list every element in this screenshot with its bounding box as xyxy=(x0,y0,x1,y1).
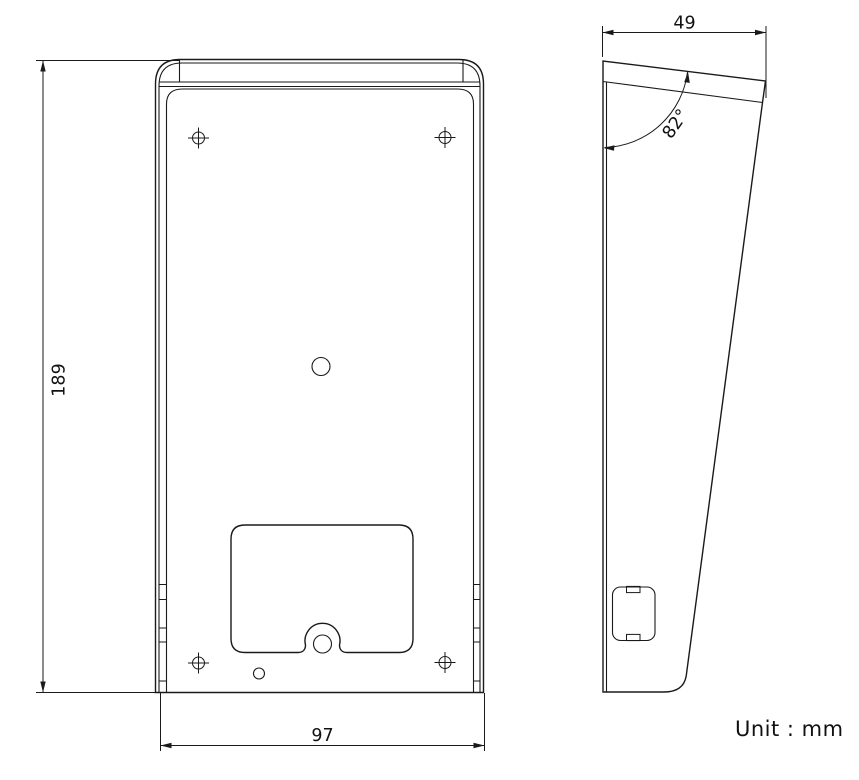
mounting-hole-top-right xyxy=(435,127,456,148)
dimension-depth: 49 xyxy=(603,14,767,99)
hook-slot-tab-bottom xyxy=(627,634,641,640)
hook-slot-outline xyxy=(613,587,656,641)
width-arrow-right xyxy=(474,743,485,748)
notch-ticks xyxy=(159,600,167,629)
back-hook-slot xyxy=(613,586,656,640)
mounting-hole-top-left xyxy=(188,128,209,149)
height-arrow-bottom xyxy=(40,682,45,693)
front-inner-panel-outline xyxy=(167,89,474,693)
notch-outline xyxy=(159,585,167,643)
dimension-height: 189 xyxy=(36,61,180,693)
dimension-drawing-canvas: 189 97 49 82° Unit : mm xyxy=(0,0,859,780)
mounting-hole-crosshair xyxy=(435,127,456,148)
depth-dimension-label: 49 xyxy=(673,14,695,34)
front-offset-outline xyxy=(159,63,480,693)
width-arrow-left xyxy=(161,743,172,748)
mounting-hole-crosshair xyxy=(435,652,456,673)
mounting-hole-crosshair xyxy=(188,653,209,674)
mounting-hole-bottom-left xyxy=(188,653,209,674)
angle-arrow-bottom xyxy=(604,145,615,151)
cable-entry-cutout xyxy=(231,525,413,653)
mounting-hole-bottom-right xyxy=(435,652,456,673)
mounting-hole-crosshair xyxy=(188,128,209,149)
right-edge-notch xyxy=(474,585,481,643)
notch-outline xyxy=(474,585,481,643)
notch-ticks xyxy=(474,600,481,629)
front-view xyxy=(156,60,484,693)
bottom-tab-right xyxy=(474,681,481,693)
height-dimension-label: 189 xyxy=(50,363,70,396)
dimension-width: 97 xyxy=(161,693,485,751)
width-dimension-label: 97 xyxy=(311,726,333,746)
unit-note: Unit : mm xyxy=(735,717,844,741)
height-arrow-top xyxy=(40,61,45,72)
depth-arrow-left xyxy=(603,30,614,35)
side-outer-outline xyxy=(603,61,766,692)
depth-arrow-right xyxy=(755,30,766,35)
angle-dimension-label: 82° xyxy=(659,106,693,143)
dimension-drawing: 189 97 49 82° Unit : mm xyxy=(0,0,859,780)
small-pilot-hole xyxy=(254,668,265,679)
cable-grommet-hole xyxy=(314,635,332,653)
front-outer-outline xyxy=(156,60,484,693)
side-view xyxy=(603,61,766,692)
center-hole xyxy=(312,358,330,376)
bottom-tab-left xyxy=(159,681,167,693)
left-edge-notch xyxy=(159,585,167,643)
